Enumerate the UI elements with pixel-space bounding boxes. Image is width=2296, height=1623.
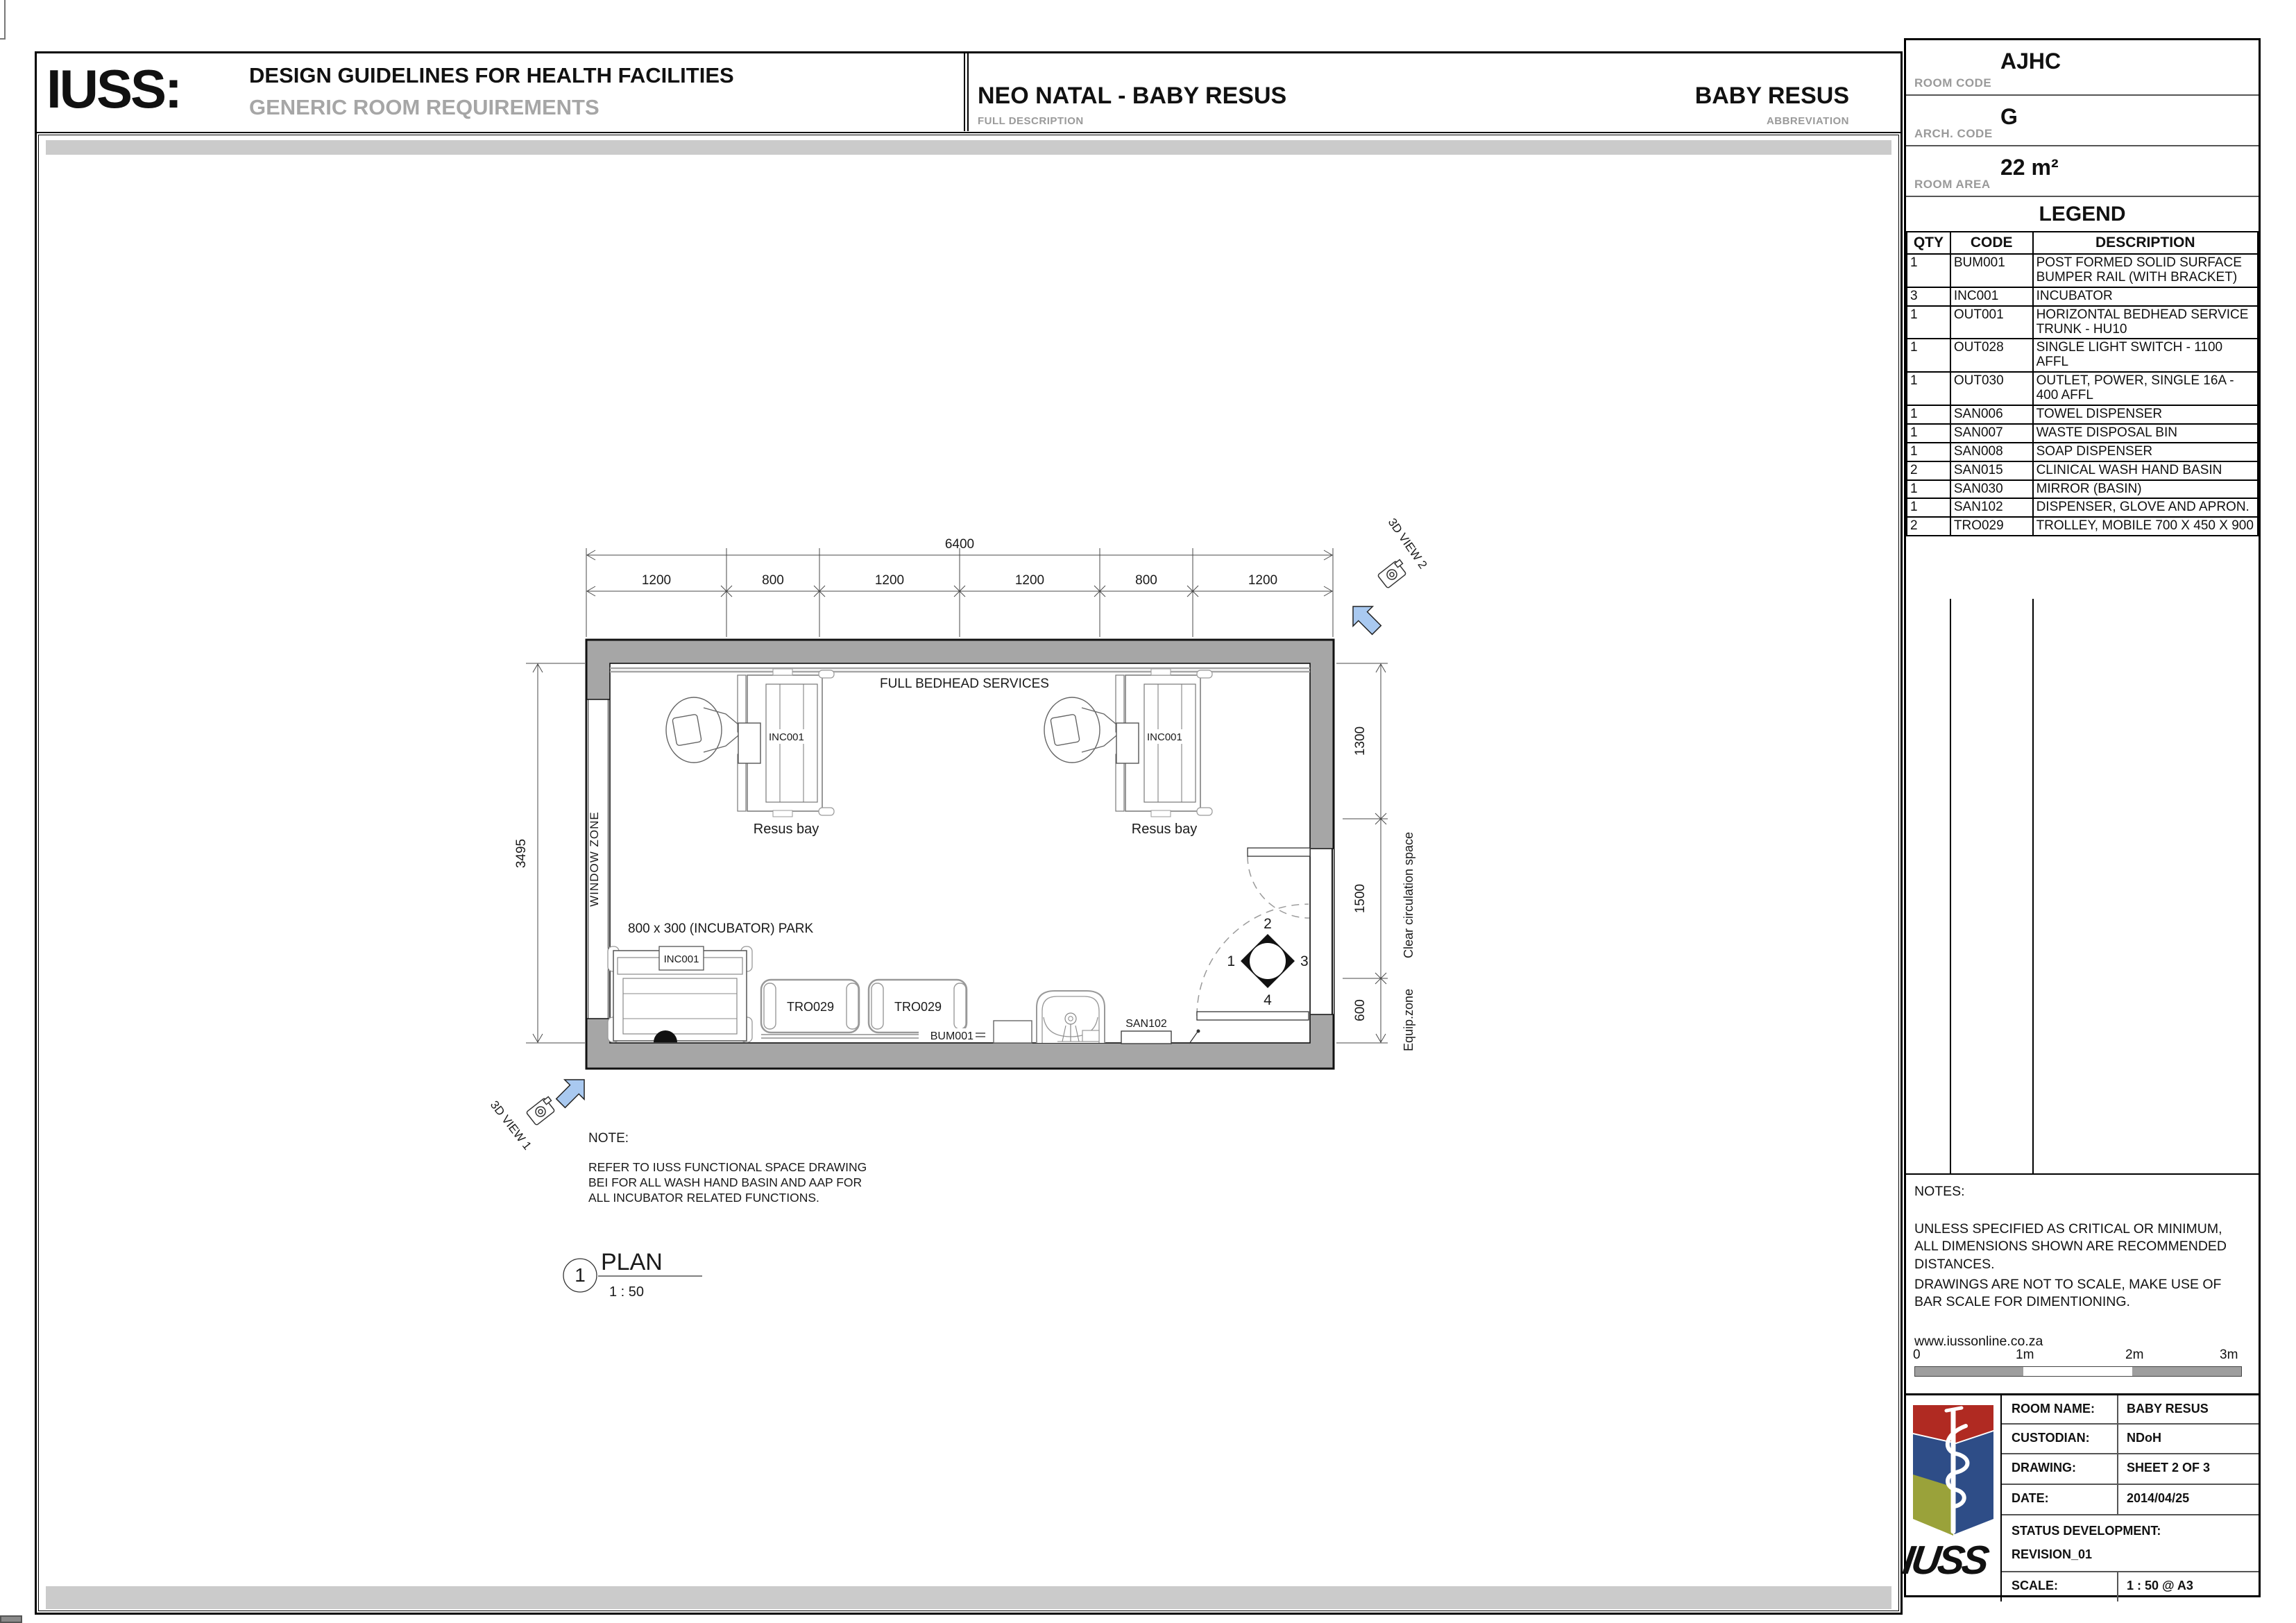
room-name-row: ROOM NAME: BABY RESUS: [2002, 1395, 2259, 1425]
full-bedhead-label: FULL BEDHEAD SERVICES: [880, 677, 1049, 691]
status-label: STATUS DEVELOPMENT:: [2012, 1524, 2161, 1538]
date-value: 2014/04/25: [2127, 1491, 2189, 1506]
legend-row: 2TRO029TROLLEY, MOBILE 700 X 450 X 900: [1907, 517, 2258, 536]
bar-scale: [1914, 1366, 2242, 1377]
legend-row: 2SAN015CLINICAL WASH HAND BASIN: [1907, 461, 2258, 480]
view2-arrow-icon: [1343, 597, 1386, 640]
note-line-2: BEI FOR ALL WASH HAND BASIN AND AAP FOR: [588, 1175, 862, 1189]
plan-number: 1: [575, 1264, 586, 1286]
wall-fixture-box: [994, 1021, 1032, 1043]
sheet-header: IUSS: DESIGN GUIDELINES FOR HEALTH FACIL…: [35, 51, 1903, 133]
iuss-logo: IUSS: [1906, 1395, 2002, 1601]
arch-code-label: ARCH. CODE: [1914, 127, 1993, 141]
iuss-logo-text: IUSS: [1900, 1537, 1989, 1583]
scale-row: SCALE: 1 : 50 @ A3: [2002, 1572, 2259, 1601]
dim-seg-2: 800: [762, 573, 784, 588]
code: BUM001: [1950, 254, 2033, 287]
legend-title: LEGEND: [1906, 197, 2259, 231]
marker-2: 2: [1264, 916, 1272, 932]
right-dimension: [1336, 663, 1388, 1043]
drawing-label: DRAWING:: [2012, 1461, 2076, 1475]
header-divider: [964, 53, 969, 131]
website-link[interactable]: www.iussonline.co.za: [1914, 1333, 2247, 1350]
desc: HORIZONTAL BEDHEAD SERVICE TRUNK - HU10: [2033, 306, 2258, 339]
plan-note: NOTE: REFER TO IUSS FUNCTIONAL SPACE DRA…: [588, 1131, 867, 1205]
date-row: DATE: 2014/04/25: [2002, 1485, 2259, 1515]
room-code-value: AJHC: [2000, 49, 2061, 74]
barscale-2m: 2m: [2125, 1347, 2143, 1364]
clear-circulation-label: Clear circulation space: [1402, 832, 1415, 958]
marker-4: 4: [1264, 992, 1272, 1008]
status-row: STATUS DEVELOPMENT: REVISION_01: [2002, 1515, 2259, 1572]
barscale-1m: 1m: [2016, 1347, 2034, 1364]
room-name-value: BABY RESUS: [2127, 1402, 2209, 1416]
qty: 1: [1907, 498, 1950, 517]
legend-row: 3INC001INCUBATOR: [1907, 287, 2258, 306]
code: SAN015: [1950, 461, 2033, 480]
legend-header-row: QTY CODE DESCRIPTION: [1907, 232, 2258, 254]
dim-right-2: 1500: [1353, 884, 1368, 913]
legend-grid-ext-2: [2032, 599, 2034, 1173]
title-block: IUSS ROOM NAME: BABY RESUS CUSTODIAN: ND…: [1906, 1393, 2259, 1599]
room-area-value: 22 m²: [2000, 155, 2059, 180]
qty: 1: [1907, 306, 1950, 339]
qty: 1: [1907, 372, 1950, 405]
date-label: DATE:: [2012, 1491, 2049, 1506]
incubator-park-label: 800 x 300 (INCUBATOR) PARK: [628, 921, 813, 936]
dim-seg-3: 1200: [875, 573, 904, 588]
scale-value: 1 : 50 @ A3: [2127, 1579, 2193, 1593]
code: SAN030: [1950, 480, 2033, 499]
qty: 1: [1907, 480, 1950, 499]
plan-scale: 1 : 50: [609, 1284, 644, 1300]
notes-title: NOTES:: [1914, 1183, 2247, 1200]
code: TRO029: [1950, 517, 2033, 536]
desc: DISPENSER, GLOVE AND APRON.: [2033, 498, 2258, 517]
qty: 3: [1907, 287, 1950, 306]
code: SAN007: [1950, 424, 2033, 443]
trolley-code-label: TRO029: [787, 1000, 834, 1014]
desc: POST FORMED SOLID SURFACE BUMPER RAIL (W…: [2033, 254, 2258, 287]
custodian-label: CUSTODIAN:: [2012, 1431, 2090, 1445]
code: OUT001: [1950, 306, 2033, 339]
code: SAN006: [1950, 405, 2033, 424]
legend-row: 1OUT001HORIZONTAL BEDHEAD SERVICE TRUNK …: [1907, 306, 2258, 339]
code: OUT030: [1950, 372, 2033, 405]
dim-seg-5: 800: [1135, 573, 1157, 588]
trolley-2: [869, 980, 967, 1033]
dim-right-3: 600: [1353, 999, 1368, 1021]
drawing-value: SHEET 2 OF 3: [2127, 1461, 2210, 1475]
note-line-3: ALL INCUBATOR RELATED FUNCTIONS.: [588, 1191, 819, 1205]
legend-row: 1SAN006TOWEL DISPENSER: [1907, 405, 2258, 424]
dim-right-1: 1300: [1353, 726, 1368, 756]
drawing-row: DRAWING: SHEET 2 OF 3: [2002, 1454, 2259, 1485]
incubator-code-label: INC001: [769, 731, 804, 743]
door-opening: [1311, 849, 1334, 1014]
page-corner-artifact: [4, 0, 6, 39]
status-value: REVISION_01: [2012, 1547, 2092, 1562]
barscale-0: 0: [1913, 1347, 1921, 1364]
bumper-rail-label: BUM001: [930, 1030, 973, 1042]
bottom-gray-band: [46, 1586, 1891, 1609]
resus-bay-label: Resus bay: [754, 822, 819, 837]
notes-para-1: UNLESS SPECIFIED AS CRITICAL OR MINIMUM,…: [1914, 1221, 2247, 1273]
barscale-3m: 3m: [2220, 1347, 2238, 1364]
trolley: TRO029: [761, 980, 859, 1033]
room-area-label: ROOM AREA: [1914, 178, 1991, 192]
info-panel: ROOM CODE AJHC ARCH. CODE G ROOM AREA 22…: [1904, 38, 2261, 1597]
legend-table: QTY CODE DESCRIPTION 1BUM001POST FORMED …: [1906, 231, 2259, 536]
notes-para-2: DRAWINGS ARE NOT TO SCALE, MAKE USE OF B…: [1914, 1276, 2247, 1311]
wash-hand-basin: [1037, 991, 1105, 1043]
room-area-row: ROOM AREA 22 m²: [1906, 146, 2259, 197]
page-bottom-artifact: [0, 1615, 22, 1623]
legend-col-qty: QTY: [1907, 232, 1950, 254]
arch-code-value: G: [2000, 104, 2018, 130]
plan-title-block: 1 PLAN 1 : 50: [563, 1249, 702, 1300]
parked-incubator-code: INC001: [664, 953, 699, 965]
code: SAN102: [1950, 498, 2033, 517]
header-subtitle: GENERIC ROOM REQUIREMENTS: [249, 95, 599, 120]
room-full-description: NEO NATAL - BABY RESUS FULL DESCRIPTION: [978, 83, 1286, 127]
desc: WASTE DISPOSAL BIN: [2033, 424, 2258, 443]
san102-label: SAN102: [1125, 1018, 1167, 1030]
iuss-logo-emblem: [1910, 1402, 1998, 1541]
top-gray-band: [46, 140, 1891, 155]
code: OUT028: [1950, 339, 2033, 372]
qty: 2: [1907, 517, 1950, 536]
plan-title: PLAN: [601, 1249, 663, 1275]
qty: 1: [1907, 443, 1950, 461]
legend-row: 1SAN008SOAP DISPENSER: [1907, 443, 2258, 461]
qty: 2: [1907, 461, 1950, 480]
legend-row: 1OUT030OUTLET, POWER, SINGLE 16A - 400 A…: [1907, 372, 2258, 405]
view2-label: 3D VIEW 2: [1386, 516, 1430, 571]
qty: 1: [1907, 424, 1950, 443]
code: INC001: [1950, 287, 2033, 306]
left-dimension: [526, 663, 585, 1043]
room-full-description-text: NEO NATAL - BABY RESUS: [978, 83, 1286, 110]
room-code-row: ROOM CODE AJHC: [1906, 40, 2259, 96]
camera-icon: [1377, 559, 1409, 588]
qty: 1: [1907, 339, 1950, 372]
drawing-area: 6400 1200 800 1200 1200 800 1200 3D VIEW…: [35, 132, 1903, 1615]
scale-label: SCALE:: [2012, 1579, 2058, 1593]
custodian-value: NDoH: [2127, 1431, 2161, 1445]
desc: MIRROR (BASIN): [2033, 480, 2258, 499]
desc: INCUBATOR: [2033, 287, 2258, 306]
marker-1: 1: [1227, 953, 1235, 969]
floor-plan-svg: 6400 1200 800 1200 1200 800 1200 3D VIEW…: [37, 133, 1900, 1612]
header-title: DESIGN GUIDELINES FOR HEALTH FACILITIES: [249, 63, 734, 88]
view2-marker: 3D VIEW 2: [1343, 516, 1430, 640]
glove-apron-dispenser: SAN102: [1121, 1018, 1171, 1044]
legend-row: 1OUT028SINGLE LIGHT SWITCH - 1100 AFFL: [1907, 339, 2258, 372]
legend-row: 1SAN030MIRROR (BASIN): [1907, 480, 2258, 499]
equip-zone-label: Equip.zone: [1402, 989, 1415, 1051]
note-line-1: REFER TO IUSS FUNCTIONAL SPACE DRAWING: [588, 1160, 867, 1174]
iuss-brand: IUSS:: [46, 58, 180, 121]
dim-left-height: 3495: [514, 839, 529, 868]
room-abbreviation: BABY RESUS ABBREVIATION: [1563, 83, 1849, 127]
incubator-panel: [738, 723, 760, 763]
view1-label: 3D VIEW 1: [488, 1098, 534, 1153]
desc: TROLLEY, MOBILE 700 X 450 X 900: [2033, 517, 2258, 536]
view1-marker: 3D VIEW 1: [488, 1070, 594, 1153]
camera-icon: [526, 1096, 558, 1125]
window-zone-label: WINDOW ZONE: [588, 811, 601, 907]
code: SAN008: [1950, 443, 2033, 461]
marker-3: 3: [1300, 953, 1309, 969]
legend-grid-ext-1: [1950, 599, 1951, 1173]
view1-arrow-icon: [551, 1070, 594, 1113]
legend-col-code: CODE: [1950, 232, 2033, 254]
custodian-row: CUSTODIAN: NDoH: [2002, 1425, 2259, 1454]
dim-seg-1: 1200: [642, 573, 671, 588]
note-title: NOTE:: [588, 1131, 629, 1146]
room-name-label: ROOM NAME:: [2012, 1402, 2095, 1416]
legend-row: 1SAN007WASTE DISPOSAL BIN: [1907, 424, 2258, 443]
desc: CLINICAL WASH HAND BASIN: [2033, 461, 2258, 480]
legend-col-desc: DESCRIPTION: [2033, 232, 2258, 254]
notes-section: NOTES: UNLESS SPECIFIED AS CRITICAL OR M…: [1906, 1173, 2259, 1393]
full-description-label: FULL DESCRIPTION: [978, 115, 1286, 127]
qty: 1: [1907, 254, 1950, 287]
legend-row: 1BUM001POST FORMED SOLID SURFACE BUMPER …: [1907, 254, 2258, 287]
arch-code-row: ARCH. CODE G: [1906, 96, 2259, 146]
legend-row: 1SAN102DISPENSER, GLOVE AND APRON.: [1907, 498, 2258, 517]
parked-incubator: INC001: [608, 946, 752, 1042]
dim-total-width: 6400: [945, 537, 974, 552]
abbreviation-label: ABBREVIATION: [1563, 115, 1849, 127]
room-code-label: ROOM CODE: [1914, 76, 1991, 90]
desc: OUTLET, POWER, SINGLE 16A - 400 AFFL: [2033, 372, 2258, 405]
dim-seg-6: 1200: [1248, 573, 1277, 588]
desc: SINGLE LIGHT SWITCH - 1100 AFFL: [2033, 339, 2258, 372]
dim-seg-4: 1200: [1015, 573, 1044, 588]
top-dimension-chain: [586, 548, 1333, 637]
drawing-sheet: IUSS: DESIGN GUIDELINES FOR HEALTH FACIL…: [0, 0, 2296, 1623]
desc: TOWEL DISPENSER: [2033, 405, 2258, 424]
desc: SOAP DISPENSER: [2033, 443, 2258, 461]
qty: 1: [1907, 405, 1950, 424]
room-abbreviation-text: BABY RESUS: [1563, 83, 1849, 110]
page-corner-artifact-line: [0, 38, 6, 40]
